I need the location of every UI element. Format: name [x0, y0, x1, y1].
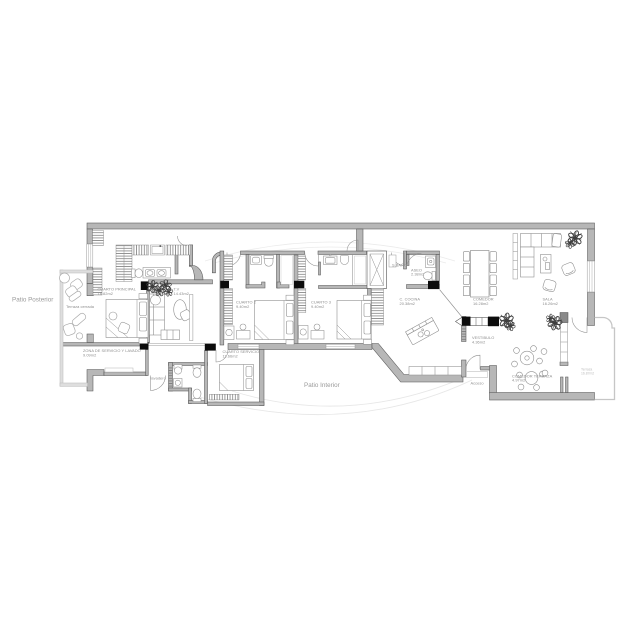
- svg-text:4.36m2: 4.36m2: [472, 340, 485, 345]
- svg-text:16.87m2: 16.87m2: [581, 372, 594, 376]
- svg-text:16.28m2: 16.28m2: [473, 301, 489, 306]
- svg-text:Patio Interior: Patio Interior: [304, 382, 340, 389]
- svg-text:Patio Posterior: Patio Posterior: [12, 297, 53, 304]
- svg-text:9.40m2: 9.40m2: [236, 304, 249, 309]
- svg-text:20.38m2: 20.38m2: [400, 301, 416, 306]
- svg-text:lavadero: lavadero: [151, 376, 166, 381]
- svg-text:S.BAÑO: S.BAÑO: [392, 263, 407, 268]
- svg-text:4.97m2: 4.97m2: [512, 378, 525, 383]
- svg-text:16.82m2: 16.82m2: [98, 291, 114, 296]
- svg-text:Terraza cerrada: Terraza cerrada: [66, 304, 95, 309]
- svg-text:14.43m2: 14.43m2: [174, 291, 190, 296]
- svg-text:11.66m2: 11.66m2: [223, 354, 238, 359]
- svg-text:2.38m2: 2.38m2: [411, 272, 424, 277]
- svg-text:9.40m2: 9.40m2: [311, 304, 324, 309]
- svg-text:Acceso: Acceso: [471, 381, 484, 386]
- svg-text:16.26m2: 16.26m2: [543, 301, 559, 306]
- svg-text:9.09m2: 9.09m2: [83, 353, 96, 358]
